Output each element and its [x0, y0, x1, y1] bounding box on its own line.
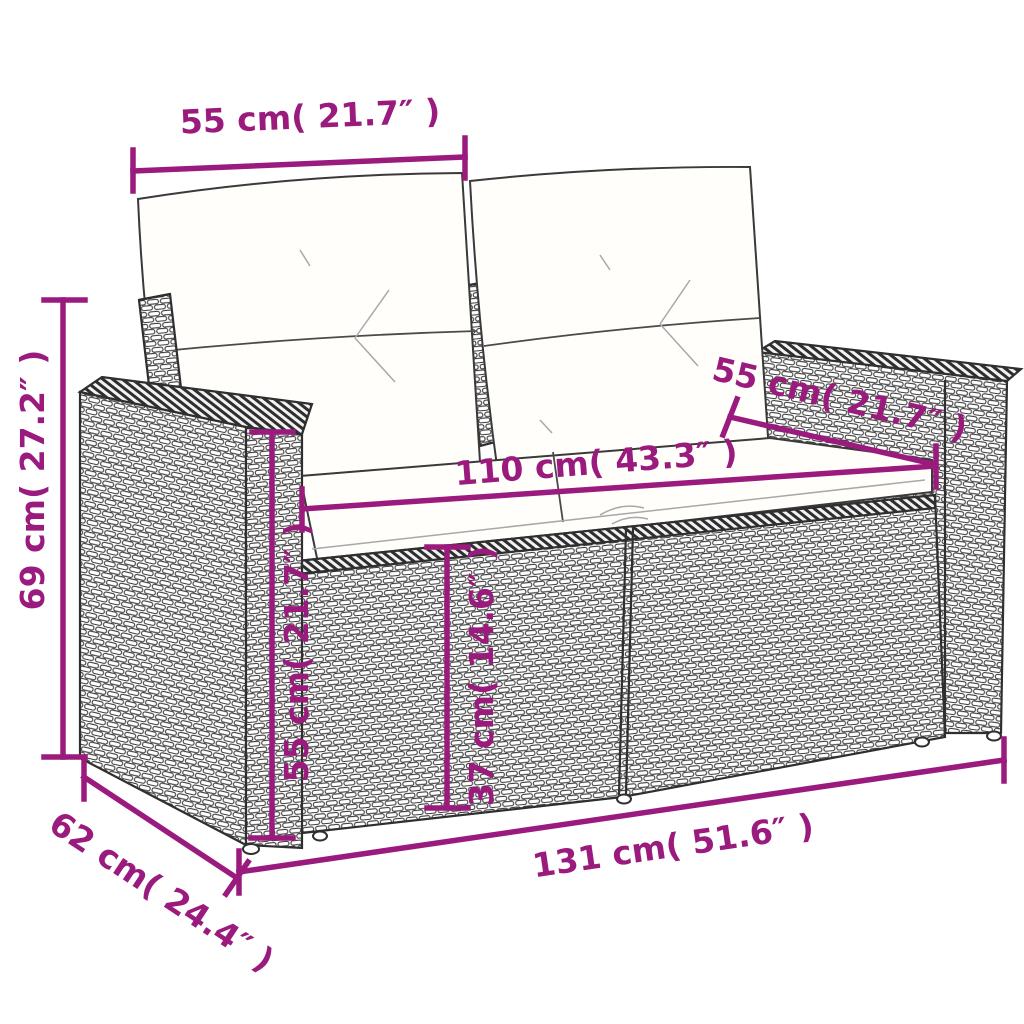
dimension-label: 37 cm( 14.6″ )	[462, 546, 501, 807]
sofa-diagram-canvas: 55 cm( 21.7″ ) 69 cm( 27.2″ ) 55 cm( 21.…	[0, 0, 1024, 1024]
product-dimension-diagram: 55 cm( 21.7″ ) 69 cm( 27.2″ ) 55 cm( 21.…	[0, 0, 1024, 1024]
dimension-label: 55 cm( 21.7″ )	[277, 522, 316, 783]
dimension-label: 69 cm( 27.2″ )	[13, 350, 52, 611]
